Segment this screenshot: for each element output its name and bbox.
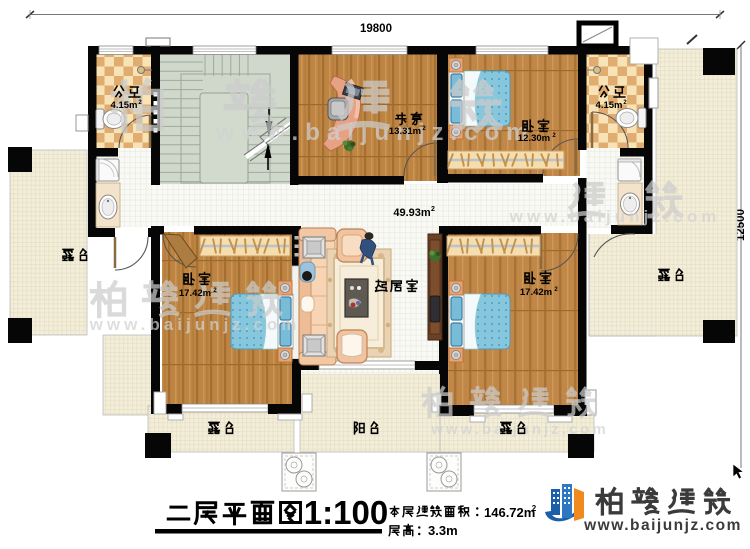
svg-text:www.baijunjz.com: www.baijunjz.com	[214, 119, 534, 146]
svg-text:www.baijunjz.com: www.baijunjz.com	[509, 207, 721, 226]
svg-text:17.42m: 17.42m	[179, 288, 211, 299]
svg-text:13.31m: 13.31m	[389, 126, 421, 137]
svg-text:www.baijunjz.com: www.baijunjz.com	[89, 315, 301, 334]
svg-text:4.15m: 4.15m	[596, 100, 623, 111]
svg-text:www.baijunjz.com: www.baijunjz.com	[583, 517, 742, 534]
svg-text:17.42m: 17.42m	[520, 287, 552, 298]
svg-text:4.15m: 4.15m	[111, 100, 138, 111]
svg-text:19800: 19800	[360, 23, 392, 35]
svg-text:1:100: 1:100	[304, 494, 388, 531]
svg-text:2: 2	[431, 206, 435, 213]
svg-text:49.93m: 49.93m	[393, 207, 431, 219]
svg-text:146.72m: 146.72m	[484, 505, 535, 520]
svg-text:2: 2	[532, 504, 537, 513]
svg-text:12.30m: 12.30m	[518, 133, 550, 144]
svg-text:3.3m: 3.3m	[428, 523, 458, 538]
